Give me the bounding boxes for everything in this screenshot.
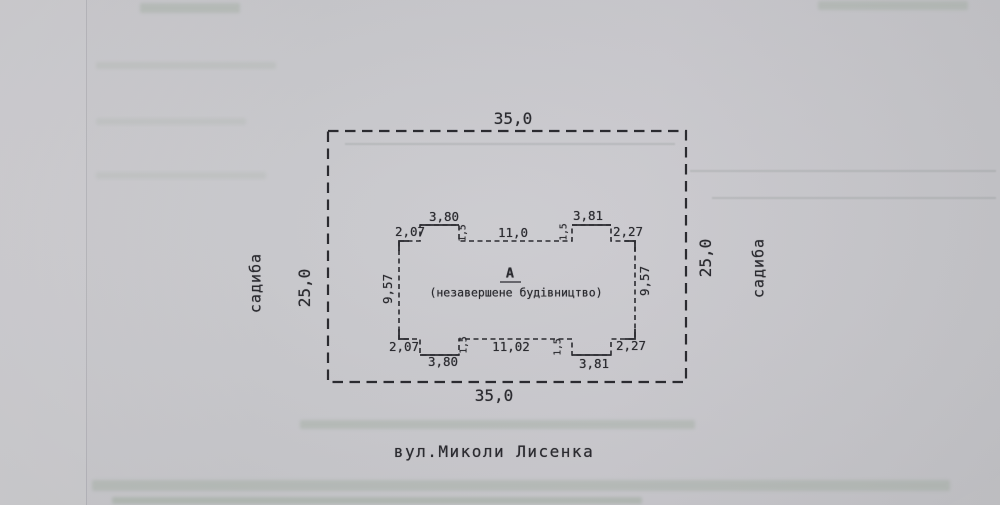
dim-side-right: 9,57 (639, 266, 652, 296)
dim-bottom-bay-left: 3,80 (428, 356, 458, 369)
plot-width-bottom-label: 35,0 (475, 388, 514, 404)
plot-depth-right-label: 25,0 (698, 239, 714, 278)
building-status-note: (незавершене будівництво) (429, 287, 602, 299)
dim-top-offset-right: 2,27 (613, 226, 643, 239)
dim-top-offset-left: 2,07 (395, 226, 425, 239)
street-name-label: вул.Миколи Лисенка (394, 444, 594, 460)
building-letter: А (506, 267, 514, 281)
dim-bottom-notch-left: 1,5 (459, 336, 469, 353)
plot-width-top-label: 35,0 (494, 111, 533, 127)
dim-bottom-offset-left: 2,07 (389, 341, 419, 354)
dim-top-notch-right: 1,5 (559, 223, 569, 240)
dim-bottom-center: 11,02 (492, 341, 530, 354)
dim-top-bay-left: 3,80 (429, 211, 459, 224)
dim-top-notch-left: 1,5 (458, 224, 468, 241)
site-plan-drawing (0, 0, 1000, 505)
neighbor-right-label: садиба (752, 238, 767, 298)
neighbor-left-label: садиба (249, 253, 264, 313)
plot-depth-left-label: 25,0 (297, 269, 313, 308)
dim-side-left: 9,57 (382, 274, 395, 304)
dim-top-center: 11,0 (498, 227, 528, 240)
scanned-page: 35,0 35,0 25,0 25,0 садиба садиба 2,07 3… (0, 0, 1000, 505)
dim-top-bay-right: 3,81 (573, 210, 603, 223)
dim-bottom-bay-right: 3,81 (579, 358, 609, 371)
dim-bottom-offset-right: 2,27 (616, 340, 646, 353)
dim-bottom-notch-right: 1,5 (553, 338, 563, 355)
